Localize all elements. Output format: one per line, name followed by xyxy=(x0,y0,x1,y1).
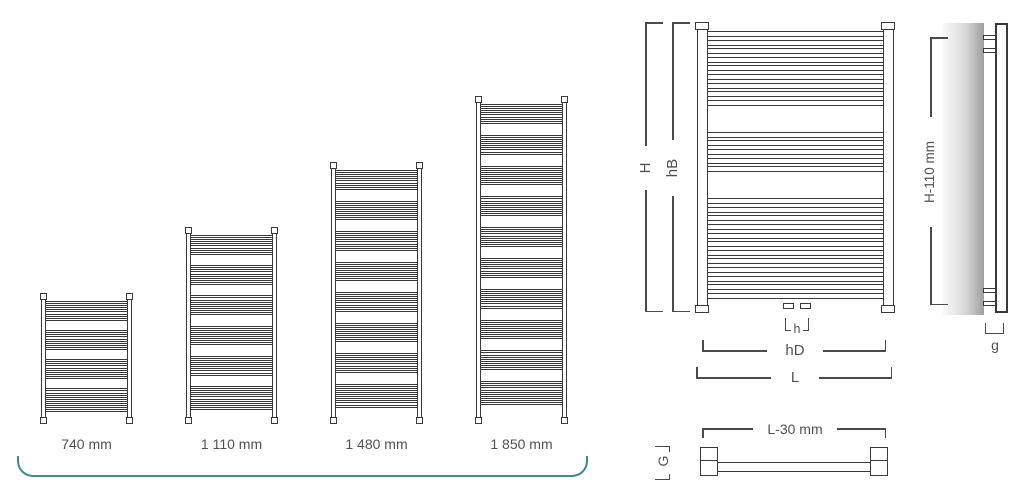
plan-end-cap xyxy=(700,460,718,476)
plan-end-cap xyxy=(870,447,888,461)
dim-mark xyxy=(655,474,670,480)
plan-end-cap xyxy=(700,447,718,461)
dim-tick xyxy=(702,428,704,438)
plan-view: L-30 mm G xyxy=(0,0,1025,482)
plan-tube xyxy=(717,462,871,472)
plan-end-cap xyxy=(870,460,888,476)
dim-label-G: G xyxy=(651,449,675,473)
dim-label-L30: L-30 mm xyxy=(753,420,837,437)
radiator-spec-diagram: 740 mm1 110 mm1 480 mm1 850 mm H hB h hD… xyxy=(0,0,1025,482)
dim-tick xyxy=(885,428,887,438)
